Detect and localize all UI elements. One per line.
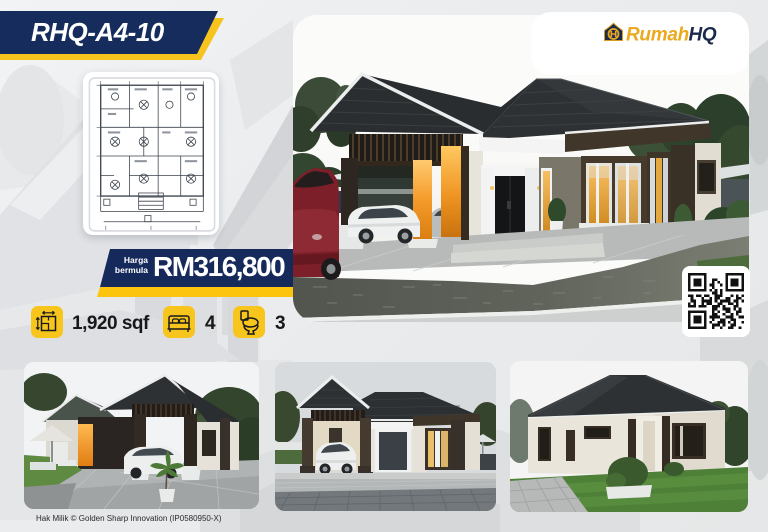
svg-text:HQ: HQ: [689, 25, 717, 46]
svg-text:Rumah: Rumah: [626, 25, 689, 46]
